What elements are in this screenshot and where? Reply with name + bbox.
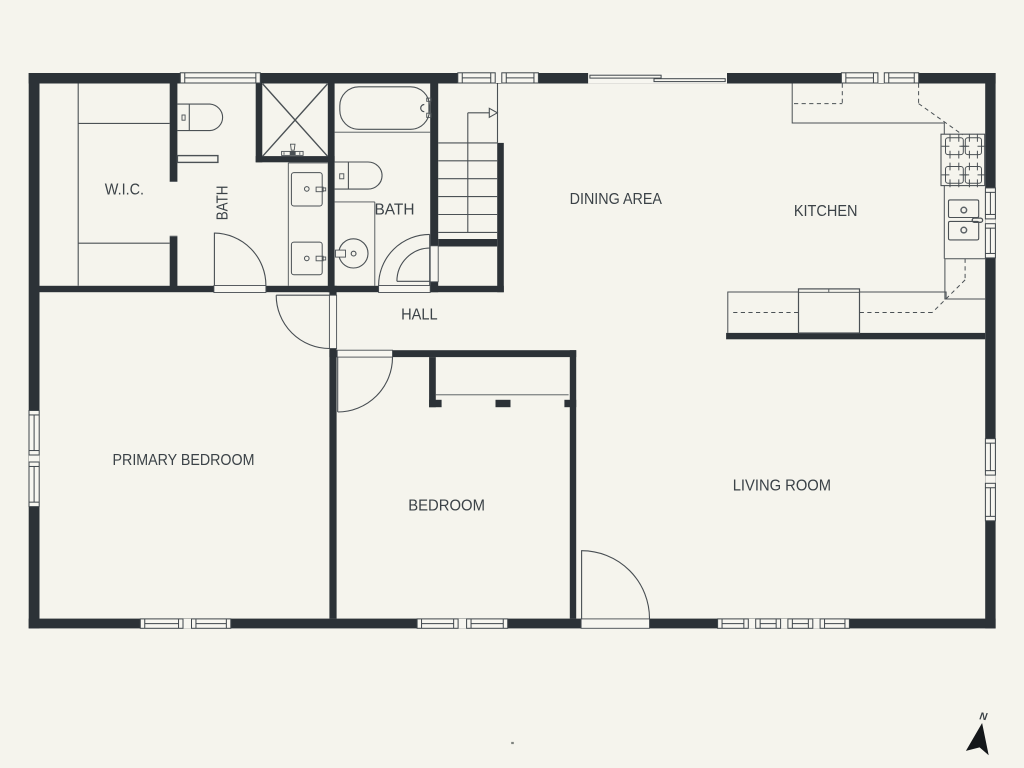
svg-text:DINING AREA: DINING AREA bbox=[570, 191, 663, 208]
svg-text:BATH: BATH bbox=[375, 202, 415, 219]
svg-text:LIVING ROOM: LIVING ROOM bbox=[733, 477, 831, 494]
svg-text:W.I.C.: W.I.C. bbox=[105, 181, 144, 198]
svg-text:HALL: HALL bbox=[401, 306, 438, 323]
svg-text:BATH: BATH bbox=[215, 186, 232, 221]
svg-text:KITCHEN: KITCHEN bbox=[794, 203, 858, 220]
svg-text:PRIMARY BEDROOM: PRIMARY BEDROOM bbox=[113, 452, 255, 469]
svg-text:BEDROOM: BEDROOM bbox=[408, 498, 485, 515]
